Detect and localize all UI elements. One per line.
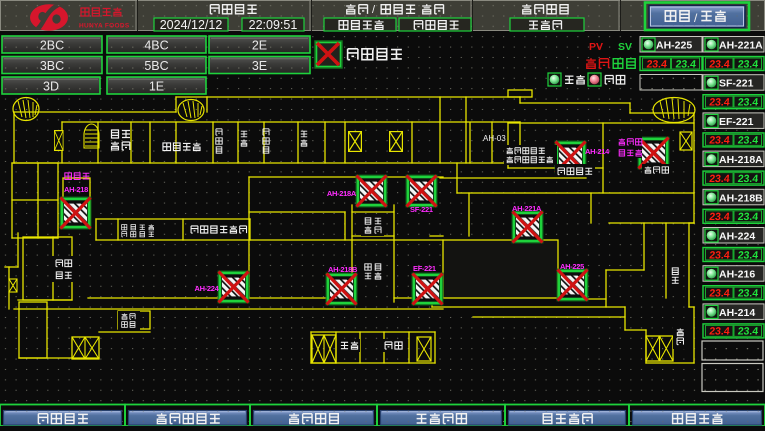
svg-text:23.4: 23.4 [709,249,731,261]
svg-text:23.4: 23.4 [737,211,759,223]
svg-text:23.4: 23.4 [709,288,731,300]
svg-text:3E: 3E [252,59,267,73]
svg-text:AH-221A: AH-221A [719,40,763,52]
svg-text:AH-218: AH-218 [64,185,88,194]
svg-text:23.4: 23.4 [737,135,759,147]
svg-text:23.4: 23.4 [646,58,668,70]
svg-text:23.4: 23.4 [709,135,731,147]
svg-text:23.4: 23.4 [709,326,731,338]
svg-text:23.4: 23.4 [709,58,731,70]
svg-text:AH-218B: AH-218B [719,192,763,204]
svg-text:SF-221: SF-221 [410,205,433,214]
svg-text:2024/12/12: 2024/12/12 [160,18,223,32]
svg-text:AH-214: AH-214 [585,147,610,156]
svg-text:AH-225: AH-225 [656,40,692,52]
svg-text:AH-221A: AH-221A [512,204,542,213]
svg-text:23.4: 23.4 [709,97,731,109]
svg-text:4BC: 4BC [144,39,168,53]
svg-text:AH-224: AH-224 [719,231,755,243]
svg-text:3BC: 3BC [40,59,64,73]
svg-text:AH-225: AH-225 [560,262,584,271]
svg-text:5BC: 5BC [144,59,168,73]
svg-text:23.4: 23.4 [737,249,759,261]
svg-text:23.4: 23.4 [709,211,731,223]
svg-text:SV: SV [618,41,632,53]
svg-text:SF-221: SF-221 [719,78,754,90]
svg-text:1E: 1E [149,80,164,94]
svg-text:23.4: 23.4 [737,97,759,109]
svg-text:AH-216: AH-216 [719,269,755,281]
svg-text:23.4: 23.4 [709,173,731,185]
svg-text:3D: 3D [43,80,59,94]
svg-text:PV: PV [589,41,603,53]
svg-text:22:09:51: 22:09:51 [249,18,298,32]
svg-text:AH-224: AH-224 [194,284,219,293]
svg-text:AH-218A: AH-218A [327,189,357,198]
svg-text:AH-218A: AH-218A [719,154,763,166]
svg-text:AH-03: AH-03 [483,134,506,143]
svg-text:AH-214: AH-214 [719,307,755,319]
svg-text:EF-221: EF-221 [413,264,436,273]
svg-text:2E: 2E [252,39,267,53]
svg-text:23.4: 23.4 [737,173,759,185]
svg-text:EF-221: EF-221 [719,116,754,128]
svg-text:23.4: 23.4 [737,58,759,70]
svg-text:2BC: 2BC [40,39,64,53]
svg-text:AH-218B: AH-218B [328,265,358,274]
svg-text:HUNYA FOODS: HUNYA FOODS [79,23,130,30]
svg-text:23.4: 23.4 [737,288,759,300]
svg-text:23.4: 23.4 [675,58,697,70]
svg-text:23.4: 23.4 [737,326,759,338]
